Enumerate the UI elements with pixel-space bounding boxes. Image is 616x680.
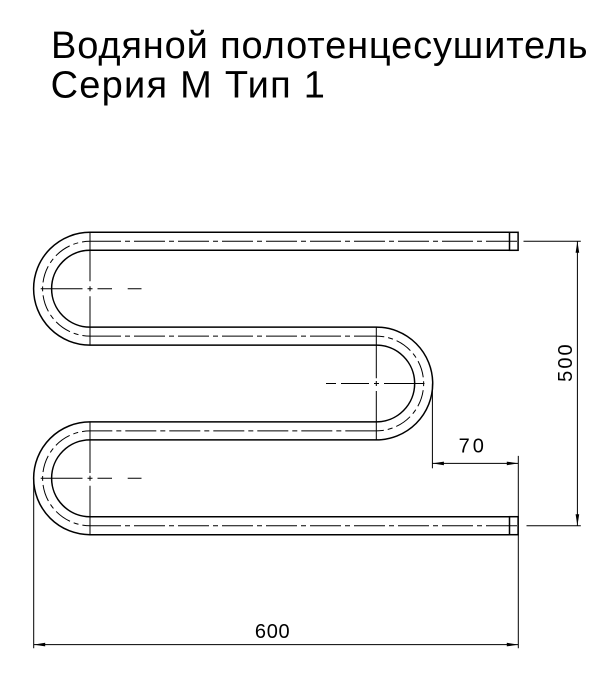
svg-text:600: 600 (255, 621, 290, 643)
svg-text:Серия М Тип 1: Серия М Тип 1 (51, 65, 327, 107)
svg-text:70: 70 (459, 436, 487, 458)
svg-text:500: 500 (555, 342, 577, 382)
svg-text:Водяной полотенцесушитель: Водяной полотенцесушитель (51, 25, 588, 67)
